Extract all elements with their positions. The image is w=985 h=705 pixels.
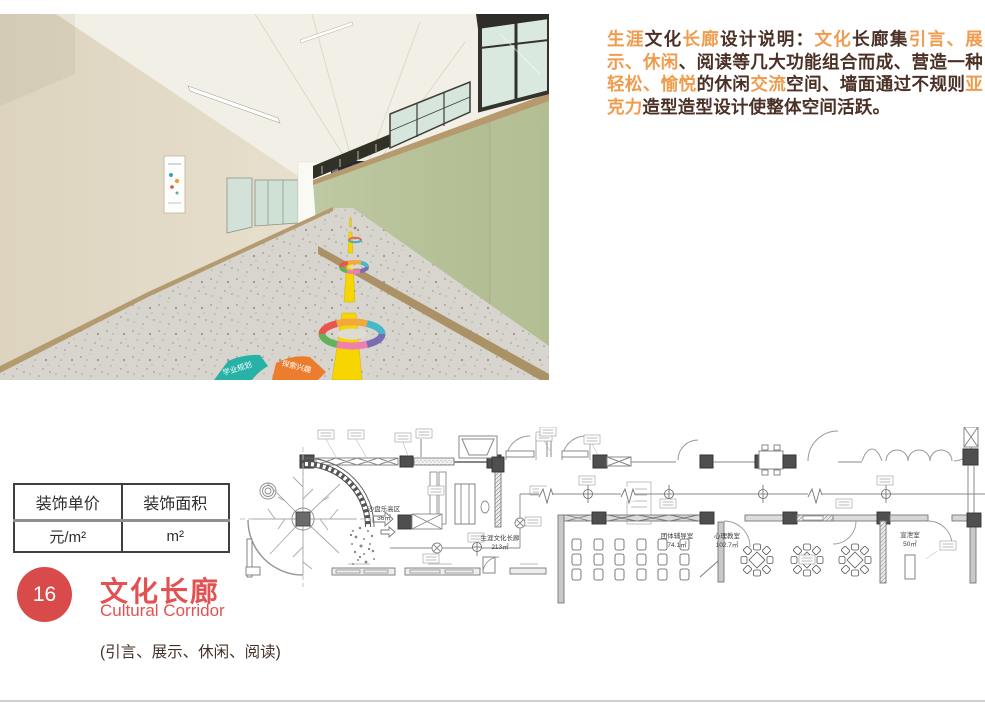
room-area-group: 74.1㎡ [667, 540, 687, 549]
decoration-table: 装饰单价 装饰面积 元/m² m² [13, 483, 230, 553]
room-area-venting: 50㎡ [903, 539, 917, 548]
room-label-corridor: 生涯文化长廊 [481, 533, 521, 542]
room-label-venting: 宣泄室 [900, 530, 920, 539]
plan-group-room [558, 512, 750, 603]
corridor-photo: 学业规划 探索兴趣 [0, 14, 549, 380]
window-top-right [476, 14, 549, 110]
room-label-psych: 心理教室 [714, 531, 741, 540]
index-badge: 16 [17, 567, 72, 622]
plan-psych-classroom [741, 512, 890, 583]
room-label-sandtable: 沙盘乐高区 [368, 504, 401, 513]
room-label-group: 团体辅导室 [661, 531, 694, 540]
plan-sand-table-zone [240, 447, 504, 587]
value-area: m² [122, 521, 230, 553]
document-page: 学业规划 探索兴趣 生涯文化长廊设计说明：文化长廊集引言、展示、休闲、阅读等几大… [0, 0, 985, 705]
bottom-divider [0, 700, 985, 702]
floor-plan: 沙盘乐高区 36㎡ [240, 427, 985, 605]
header-unit-price: 装饰单价 [14, 484, 122, 521]
value-unit-price: 元/m² [14, 521, 122, 553]
page-subtitle: (引言、展示、休闲、阅读) [100, 640, 281, 662]
header-area: 装饰面积 [122, 484, 230, 521]
room-area-sandtable: 36㎡ [377, 513, 391, 522]
page-title-en: Cultural Corridor [100, 601, 225, 621]
plan-venting-room [890, 513, 981, 583]
wall-poster [164, 156, 185, 213]
room-area-corridor: 213㎡ [491, 542, 509, 551]
design-description: 生涯文化长廊设计说明：文化长廊集引言、展示、休闲、阅读等几大功能组合而成、营造一… [607, 28, 983, 118]
room-area-psych: 102.7㎡ [716, 540, 739, 549]
